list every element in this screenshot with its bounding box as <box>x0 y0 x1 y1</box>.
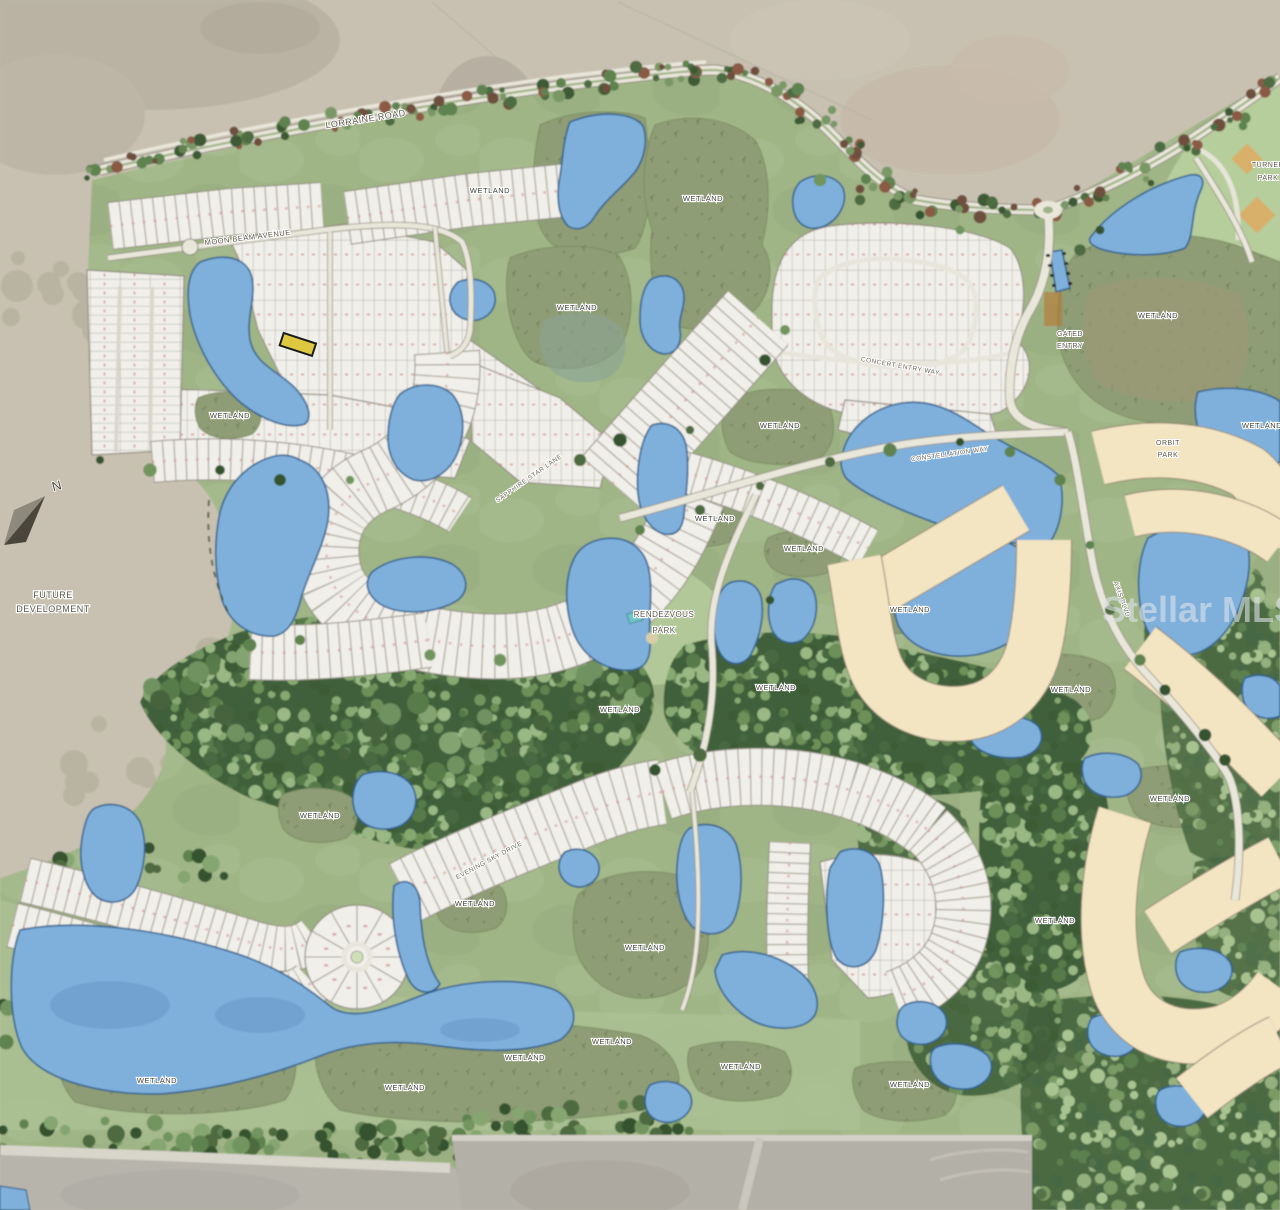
svg-text:ENTRY: ENTRY <box>1057 343 1083 350</box>
svg-text:WETLAND: WETLAND <box>455 899 495 908</box>
svg-text:ORBIT: ORBIT <box>1156 440 1180 447</box>
svg-text:FUTURE: FUTURE <box>33 590 73 600</box>
svg-text:WETLAND: WETLAND <box>784 544 824 553</box>
svg-text:DEVELOPMENT: DEVELOPMENT <box>16 604 90 614</box>
svg-text:WETLAND: WETLAND <box>890 1080 930 1089</box>
svg-text:PARK: PARK <box>1158 452 1179 459</box>
svg-text:WETLAND: WETLAND <box>1150 794 1190 803</box>
svg-text:WETLAND: WETLAND <box>557 303 597 312</box>
svg-text:WETLAND: WETLAND <box>721 1062 761 1071</box>
svg-text:WETLAND: WETLAND <box>695 514 735 523</box>
svg-text:TURNER: TURNER <box>1252 162 1280 169</box>
svg-text:WETLAND: WETLAND <box>300 811 340 820</box>
svg-text:WETLAND: WETLAND <box>385 1083 425 1092</box>
svg-text:WETLAND: WETLAND <box>470 186 510 195</box>
svg-text:WETLAND: WETLAND <box>505 1053 545 1062</box>
svg-text:WETLAND: WETLAND <box>890 605 930 614</box>
svg-text:PARK: PARK <box>652 626 675 635</box>
svg-text:WETLAND: WETLAND <box>1035 916 1075 925</box>
svg-text:WETLAND: WETLAND <box>756 683 796 692</box>
svg-text:WETLAND: WETLAND <box>137 1076 177 1085</box>
svg-text:GATED: GATED <box>1057 331 1083 338</box>
svg-text:WETLAND: WETLAND <box>1138 311 1178 320</box>
svg-text:WETLAND: WETLAND <box>760 421 800 430</box>
svg-text:WETLAND: WETLAND <box>625 943 665 952</box>
svg-text:WETLAND: WETLAND <box>683 194 723 203</box>
svg-text:WETLAND: WETLAND <box>210 411 250 420</box>
svg-text:RENDEZVOUS: RENDEZVOUS <box>634 610 695 619</box>
svg-text:PARK: PARK <box>1258 175 1279 182</box>
svg-text:WETLAND: WETLAND <box>1242 421 1280 430</box>
svg-text:WETLAND: WETLAND <box>592 1037 632 1046</box>
svg-text:WETLAND: WETLAND <box>600 705 640 714</box>
svg-text:WETLAND: WETLAND <box>1051 685 1091 694</box>
svg-text:Stellar MLS: Stellar MLS <box>1102 589 1280 630</box>
